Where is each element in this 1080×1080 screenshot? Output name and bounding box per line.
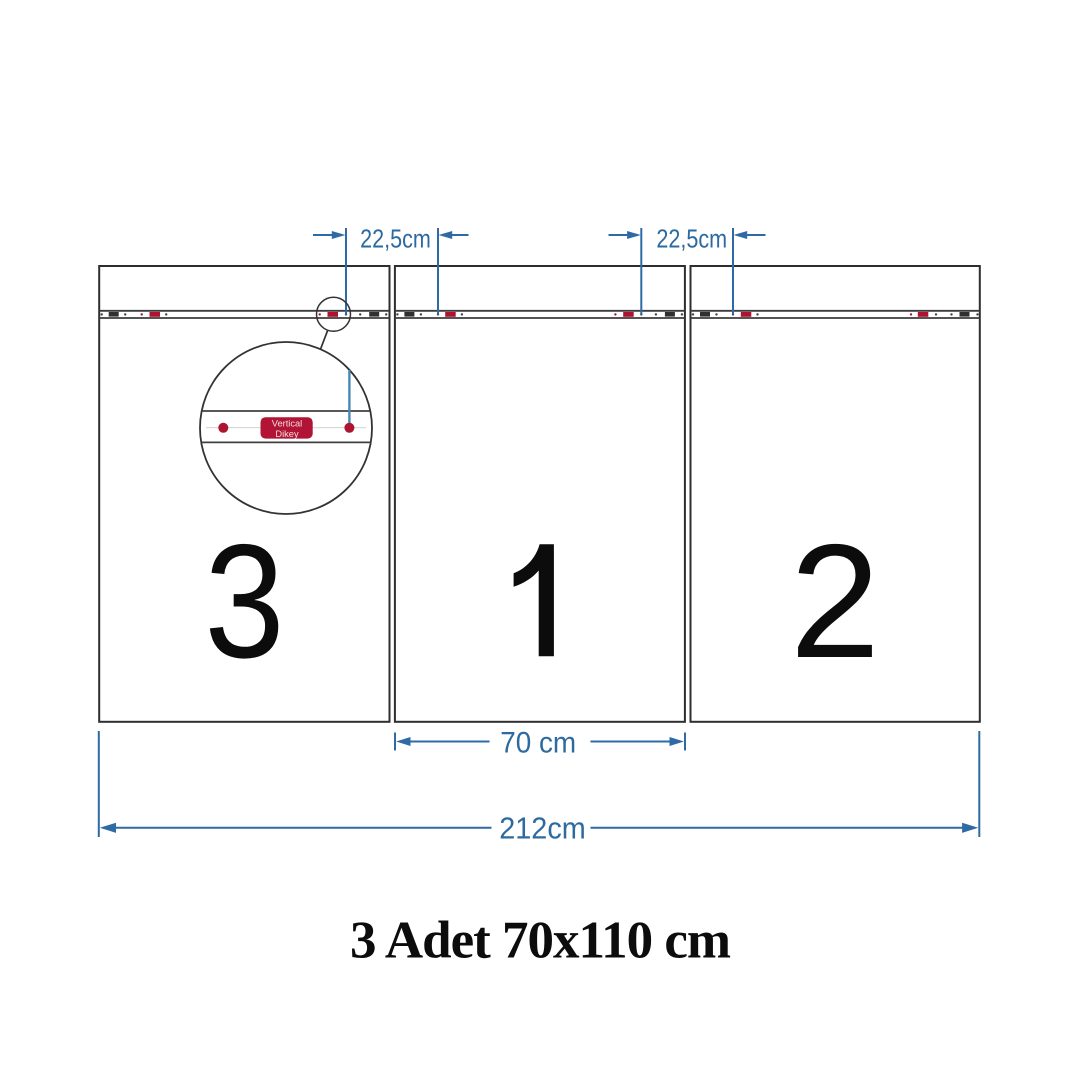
svg-text:3: 3 <box>204 511 284 692</box>
svg-text:22,5cm: 22,5cm <box>656 225 727 254</box>
svg-text:3 Adet 70x110 cm: 3 Adet 70x110 cm <box>350 912 731 970</box>
svg-text:2: 2 <box>790 511 880 692</box>
svg-text:Dikey: Dikey <box>275 429 299 439</box>
svg-text:Vertical: Vertical <box>272 418 303 428</box>
svg-text:22,5cm: 22,5cm <box>360 225 431 254</box>
svg-text:70 cm: 70 cm <box>500 727 576 760</box>
svg-text:212cm: 212cm <box>499 812 585 846</box>
